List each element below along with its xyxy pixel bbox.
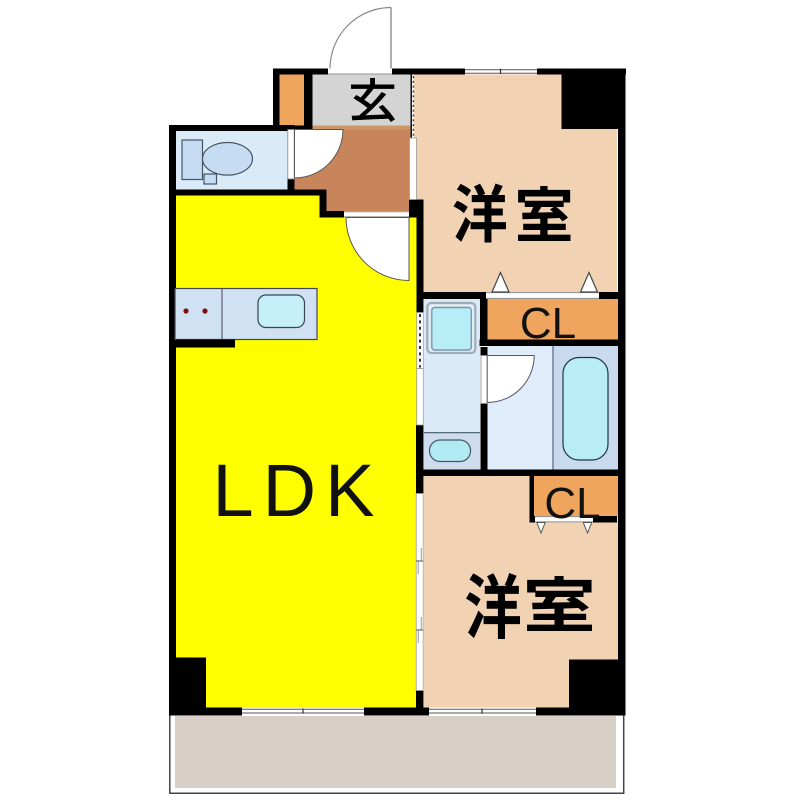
svg-text:CL: CL [520, 299, 576, 348]
svg-text:CL: CL [544, 479, 600, 528]
svg-text:LDK: LDK [213, 449, 384, 532]
